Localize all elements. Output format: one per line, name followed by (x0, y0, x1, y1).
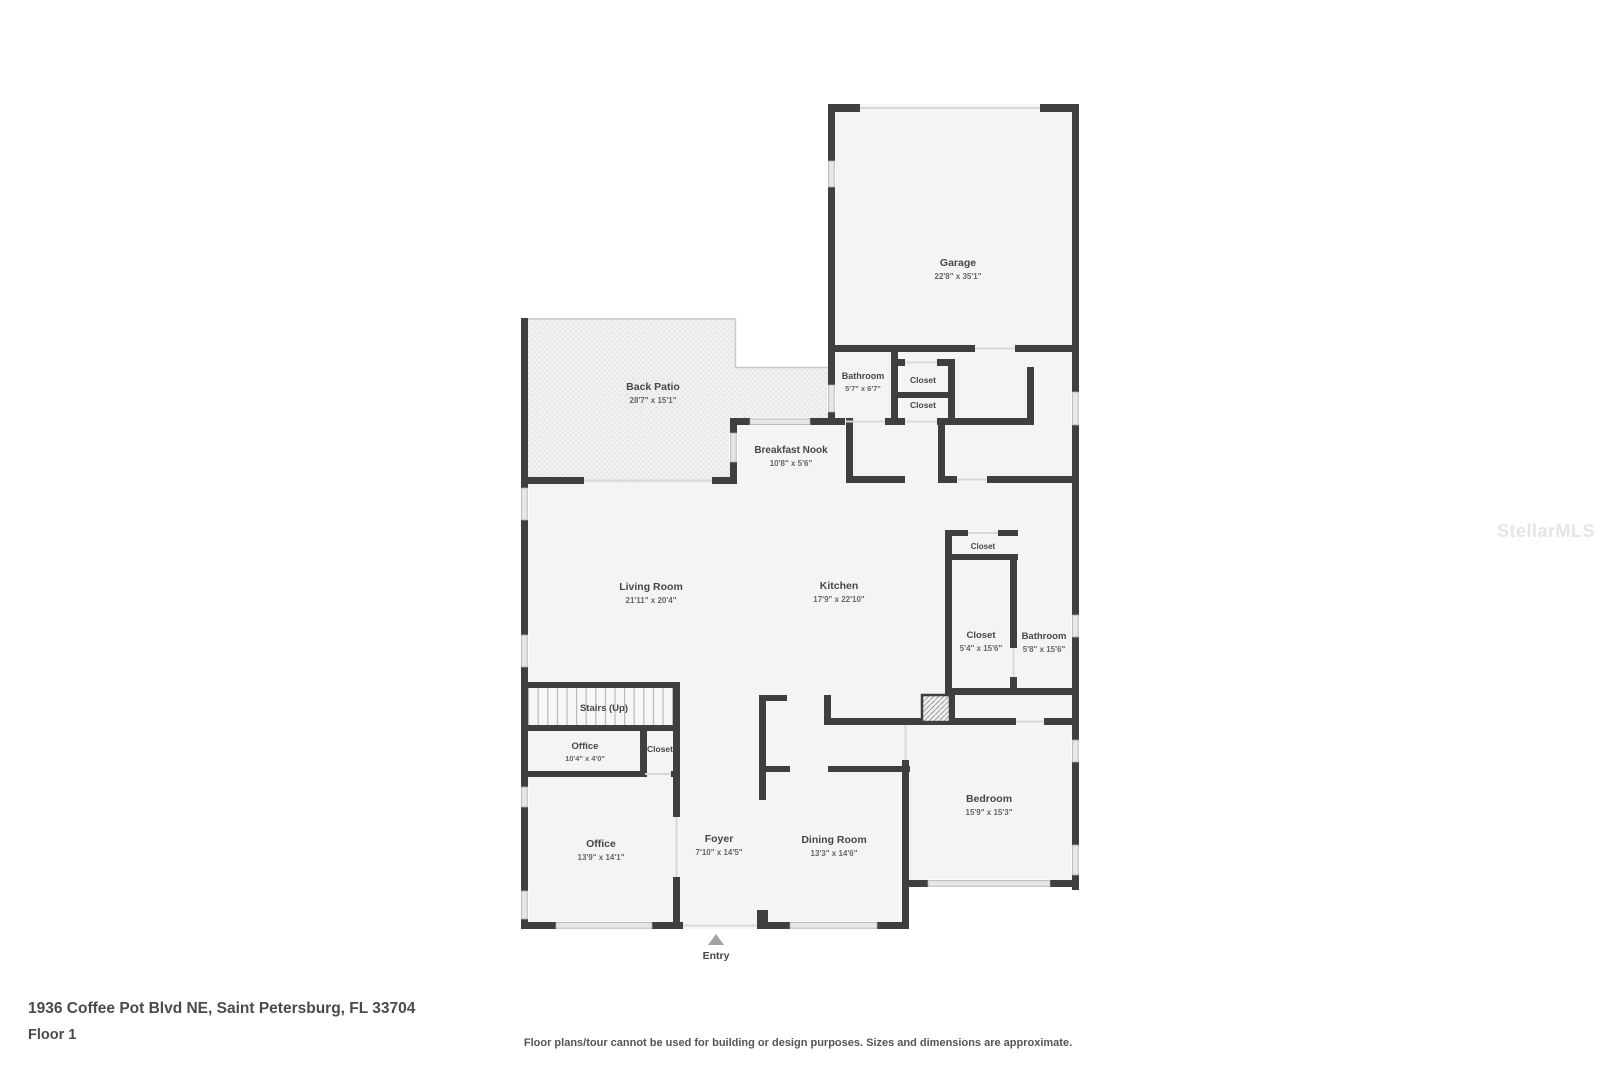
disclaimer-text: Floor plans/tour cannot be used for buil… (524, 1037, 1072, 1049)
svg-text:Bathroom: Bathroom (1022, 631, 1067, 642)
entry-label: Entry (703, 950, 730, 962)
svg-text:Breakfast Nook: Breakfast Nook (754, 445, 828, 456)
room-label-stairs: Stairs (Up) (580, 703, 628, 714)
svg-text:Closet: Closet (971, 542, 996, 551)
svg-text:15'9" x 15'3": 15'9" x 15'3" (966, 808, 1013, 817)
svg-text:21'11" x 20'4": 21'11" x 20'4" (626, 596, 677, 605)
entry-arrow-icon (708, 934, 724, 945)
svg-text:13'9" x 14'1": 13'9" x 14'1" (578, 853, 625, 862)
svg-text:10'4" x 4'0": 10'4" x 4'0" (565, 754, 605, 763)
svg-text:Dining Room: Dining Room (801, 834, 866, 846)
svg-text:Foyer: Foyer (705, 833, 734, 845)
svg-text:5'8" x 15'6": 5'8" x 15'6" (1023, 645, 1066, 654)
svg-text:Closet: Closet (910, 375, 936, 385)
room-label-closet-top-1: Closet (910, 375, 936, 385)
svg-text:22'8" x 35'1": 22'8" x 35'1" (935, 272, 982, 281)
svg-text:Garage: Garage (940, 257, 976, 269)
svg-text:Stairs (Up): Stairs (Up) (580, 703, 628, 714)
room-label-closet-office: Closet (647, 744, 673, 754)
svg-text:Closet: Closet (910, 400, 936, 410)
svg-text:Closet: Closet (966, 630, 996, 641)
svg-text:28'7" x 15'1": 28'7" x 15'1" (630, 396, 677, 405)
floor-plan: Garage 22'8" x 35'1" Back Patio 28'7" x … (0, 0, 1600, 1066)
fireplace-hatch (922, 695, 950, 722)
svg-text:Kitchen: Kitchen (820, 580, 859, 592)
room-label-closet-small: Closet (971, 542, 996, 551)
svg-text:5'7" x 6'7": 5'7" x 6'7" (845, 384, 881, 393)
svg-text:Entry: Entry (703, 950, 730, 962)
svg-text:Bathroom: Bathroom (842, 371, 885, 381)
floor-label: Floor 1 (28, 1027, 76, 1043)
svg-text:7'10" x 14'5": 7'10" x 14'5" (696, 848, 743, 857)
svg-text:Closet: Closet (647, 744, 673, 754)
room-label-closet-top-2: Closet (910, 400, 936, 410)
svg-text:Office: Office (586, 838, 616, 850)
watermark: StellarMLS (1497, 521, 1595, 541)
svg-text:17'9" x 22'10": 17'9" x 22'10" (813, 595, 865, 604)
room-fills (521, 104, 1079, 929)
svg-text:Living Room: Living Room (619, 581, 683, 593)
svg-text:Back Patio: Back Patio (626, 381, 680, 393)
svg-text:Office: Office (572, 741, 599, 752)
svg-text:10'8" x 5'6": 10'8" x 5'6" (770, 459, 813, 468)
property-address: 1936 Coffee Pot Blvd NE, Saint Petersbur… (28, 1000, 415, 1018)
svg-text:5'4" x 15'6": 5'4" x 15'6" (960, 644, 1003, 653)
svg-text:13'3" x 14'6": 13'3" x 14'6" (811, 849, 858, 858)
svg-text:Bedroom: Bedroom (966, 793, 1012, 805)
